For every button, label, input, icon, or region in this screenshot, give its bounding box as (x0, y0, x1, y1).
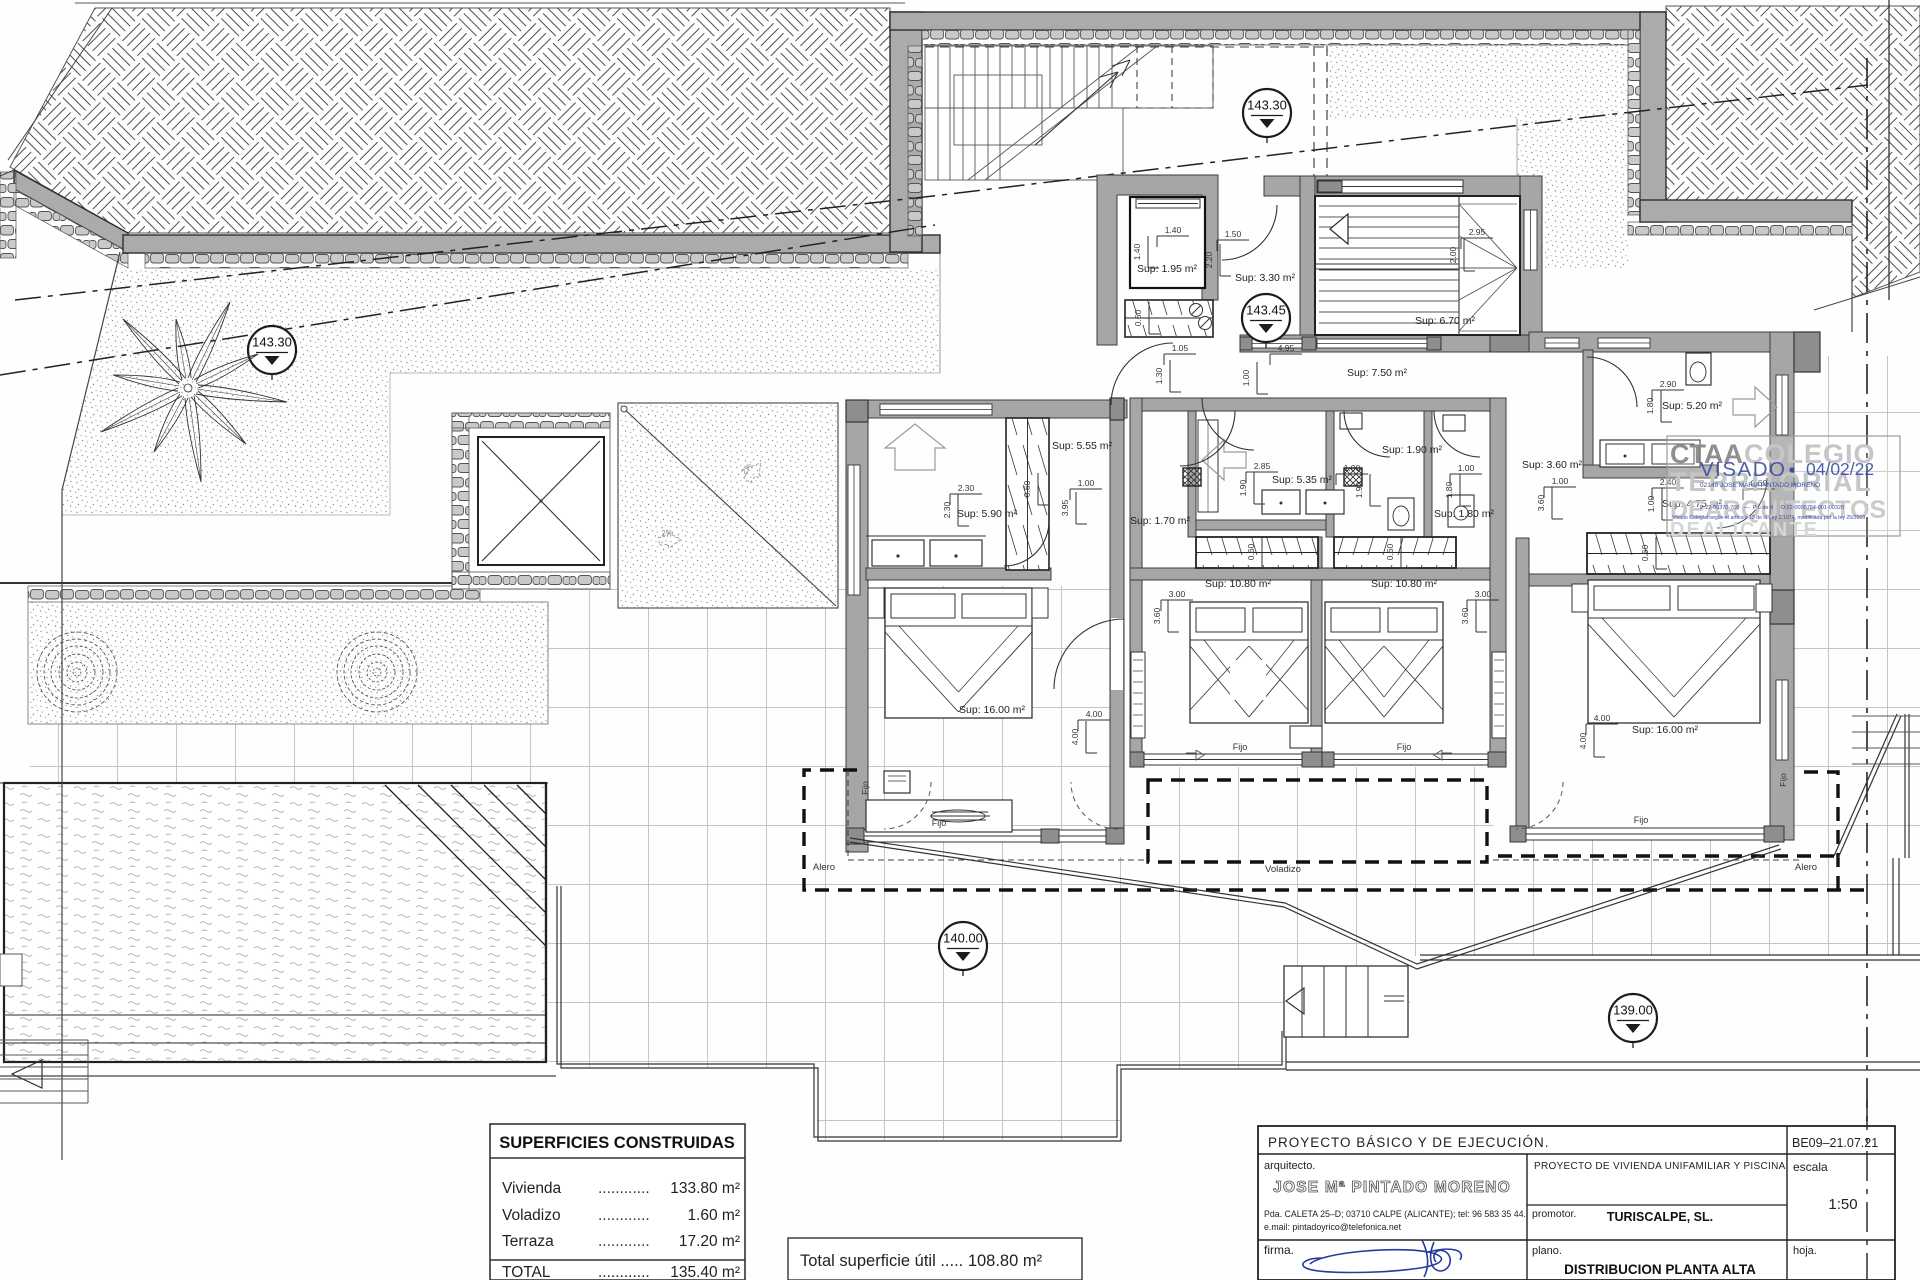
svg-text:PROYECTO DE VIVIENDA UNIFAMILI: PROYECTO DE VIVIENDA UNIFAMILIAR Y PISCI… (1534, 1161, 1789, 1172)
svg-text:Total superficie útil ..... 10: Total superficie útil ..... 108.80 m² (800, 1252, 1043, 1270)
svg-text:DISTRIBUCION PLANTA ALTA: DISTRIBUCION PLANTA ALTA (1564, 1262, 1756, 1277)
svg-text:133.80 m²: 133.80 m² (670, 1180, 740, 1197)
svg-text:Sup: 1.95 m²: Sup: 1.95 m² (1137, 263, 1198, 275)
svg-text:Fijo: Fijo (1634, 815, 1649, 825)
svg-text:1.80: 1.80 (1444, 481, 1454, 498)
svg-text:2.00: 2.00 (1448, 246, 1458, 263)
svg-text:0.60: 0.60 (1246, 543, 1256, 560)
svg-text:4.00: 4.00 (1594, 713, 1611, 723)
svg-text:2%: 2% (661, 528, 673, 538)
svg-text:1.30: 1.30 (1154, 367, 1164, 384)
svg-text:Sup: 1.80 m²: Sup: 1.80 m² (1434, 508, 1495, 520)
svg-text:Voladizo: Voladizo (1265, 864, 1301, 875)
svg-text:140.00: 140.00 (943, 931, 983, 946)
svg-text:Sup: 5.35 m²: Sup: 5.35 m² (1272, 474, 1333, 486)
svg-text:firma.: firma. (1264, 1243, 1294, 1257)
svg-text:hoja.: hoja. (1793, 1245, 1817, 1257)
svg-text:1:50: 1:50 (1828, 1196, 1857, 1213)
svg-text:1.05: 1.05 (1172, 343, 1189, 353)
svg-text:Sup: 6.70 m²: Sup: 6.70 m² (1415, 315, 1476, 327)
svg-text:3.00: 3.00 (1475, 589, 1492, 599)
svg-text:SUPERFICIES CONSTRUIDAS: SUPERFICIES CONSTRUIDAS (499, 1134, 735, 1152)
svg-text:Sup: 7.50 m²: Sup: 7.50 m² (1347, 367, 1408, 379)
svg-text:1.90: 1.90 (1238, 479, 1248, 496)
svg-text:TOTAL: TOTAL (502, 1264, 551, 1280)
svg-text:143.30: 143.30 (1247, 98, 1287, 113)
svg-text:17.20 m²: 17.20 m² (679, 1233, 740, 1250)
svg-text:Sup: 10.80 m²: Sup: 10.80 m² (1205, 578, 1271, 590)
svg-text:............: ............ (598, 1207, 650, 1224)
svg-text:Sup: 16.00 m²: Sup: 16.00 m² (959, 704, 1025, 716)
svg-text:2.85: 2.85 (1254, 461, 1271, 471)
svg-text:3.00: 3.00 (1169, 589, 1186, 599)
svg-text:1.00: 1.00 (1078, 478, 1095, 488)
svg-text:Sup: 5.55 m²: Sup: 5.55 m² (1052, 440, 1113, 452)
svg-text:Sup: 16.00 m²: Sup: 16.00 m² (1632, 724, 1698, 736)
svg-text:BE09–21.07.21: BE09–21.07.21 (1792, 1136, 1878, 1150)
svg-text:............: ............ (598, 1180, 650, 1197)
svg-text:escala: escala (1793, 1160, 1828, 1174)
svg-text:0.60: 0.60 (1385, 543, 1395, 560)
svg-text:Pda. CALETA 25–D; 03710 CA: Pda. CALETA 25–D; 03710 CALPE (ALICANTE)… (1264, 1209, 1526, 1219)
svg-text:1.00: 1.00 (1552, 476, 1569, 486)
svg-text:Fijo: Fijo (1778, 773, 1788, 787)
svg-text:1.40: 1.40 (1165, 225, 1182, 235)
svg-text:1.90: 1.90 (1354, 481, 1364, 498)
svg-text:Sup: 1.70 m²: Sup: 1.70 m² (1130, 515, 1191, 527)
svg-text:2.30: 2.30 (958, 483, 975, 493)
svg-text:4.00: 4.00 (1086, 709, 1103, 719)
svg-text:4.00: 4.00 (1578, 732, 1588, 749)
svg-text:Sup: 3.60 m²: Sup: 3.60 m² (1522, 459, 1583, 471)
svg-text:1.50: 1.50 (1225, 229, 1242, 239)
svg-text:Terraza: Terraza (502, 1233, 554, 1250)
svg-text:4.95: 4.95 (1278, 343, 1295, 353)
svg-text:0.60: 0.60 (1022, 480, 1032, 497)
svg-text:arquitecto.: arquitecto. (1264, 1160, 1315, 1172)
svg-text:135.40 m²: 135.40 m² (670, 1264, 740, 1280)
svg-text:2.20: 2.20 (1204, 251, 1214, 268)
svg-text:2.90: 2.90 (1660, 379, 1677, 389)
svg-text:PROYECTO BÁSICO Y DE EJECU: PROYECTO BÁSICO Y DE EJECUCIÓN. (1268, 1135, 1550, 1150)
svg-text:143.30: 143.30 (252, 335, 292, 350)
svg-text:02149 JOSE MARIA PINTADO MOREN: 02149 JOSE MARIA PINTADO MORENO (1700, 482, 1820, 489)
svg-text:TURISCALPE, SL.: TURISCALPE, SL. (1607, 1210, 1713, 1224)
svg-text:143.45: 143.45 (1246, 303, 1286, 318)
svg-text:Sup: 10.80 m²: Sup: 10.80 m² (1371, 578, 1437, 590)
svg-text:Fijo: Fijo (932, 818, 947, 828)
svg-text:2.30: 2.30 (942, 501, 952, 518)
svg-text:Sup: 3.30 m²: Sup: 3.30 m² (1235, 272, 1296, 284)
svg-text:Fijo: Fijo (860, 781, 870, 795)
svg-text:............: ............ (598, 1264, 650, 1280)
svg-text:e.mail: pintadoyrico@telefoni: e.mail: pintadoyrico@telefonica.net (1264, 1222, 1402, 1232)
svg-text:1.80: 1.80 (1645, 397, 1655, 414)
svg-text:1.40: 1.40 (1132, 243, 1142, 260)
svg-text:Fijo: Fijo (1397, 742, 1412, 752)
svg-text:3.60: 3.60 (1152, 607, 1162, 624)
svg-text:2.95: 2.95 (1469, 227, 1486, 237)
svg-text:Sup: 5.90 m²: Sup: 5.90 m² (957, 508, 1018, 520)
svg-text:Sup: 1.90 m²: Sup: 1.90 m² (1382, 444, 1443, 456)
svg-text:Sup: 5.20 m²: Sup: 5.20 m² (1662, 400, 1723, 412)
svg-text:1.00: 1.00 (1458, 463, 1475, 473)
svg-text:0.60: 0.60 (1133, 309, 1143, 326)
svg-text:JOSE Mª PINTADO MORENO: JOSE Mª PINTADO MORENO (1273, 1179, 1511, 1196)
svg-text:1.60 m²: 1.60 m² (687, 1207, 740, 1224)
svg-text:Visado Colegial según el artíc: Visado Colegial según el artículo 13 de … (1672, 515, 1865, 521)
svg-text:3.95: 3.95 (1060, 499, 1070, 516)
svg-text:Alero: Alero (813, 862, 835, 873)
svg-text:2: 2 (1834, 1276, 1846, 1280)
svg-text:1.00: 1.00 (1344, 463, 1361, 473)
svg-text:E:22-00370-700 — P:6 de 4: E:22-00370-700 — P:6 de 4 O:22-0000784-0… (1700, 505, 1844, 511)
svg-text:Alero: Alero (1795, 862, 1817, 873)
svg-text:139.00: 139.00 (1613, 1003, 1653, 1018)
svg-text:Voladizo: Voladizo (502, 1207, 561, 1224)
svg-text:4.00: 4.00 (1070, 728, 1080, 745)
svg-text:1.00: 1.00 (1646, 495, 1656, 512)
svg-text:3.60: 3.60 (1536, 494, 1546, 511)
svg-text:Vivienda: Vivienda (502, 1180, 562, 1197)
svg-text:VISADO: VISADO (1700, 458, 1786, 481)
svg-text:04/02/22: 04/02/22 (1806, 459, 1874, 479)
svg-text:1.00: 1.00 (1241, 369, 1251, 386)
svg-text:Fijo: Fijo (1233, 742, 1248, 752)
svg-text:DEALICANTE: DEALICANTE (1670, 519, 1819, 541)
svg-text:............: ............ (598, 1233, 650, 1250)
svg-text:promotor.: promotor. (1532, 1208, 1576, 1220)
svg-text:3.60: 3.60 (1460, 607, 1470, 624)
svg-text:plano.: plano. (1532, 1245, 1562, 1257)
svg-text:0.60: 0.60 (1640, 544, 1650, 561)
